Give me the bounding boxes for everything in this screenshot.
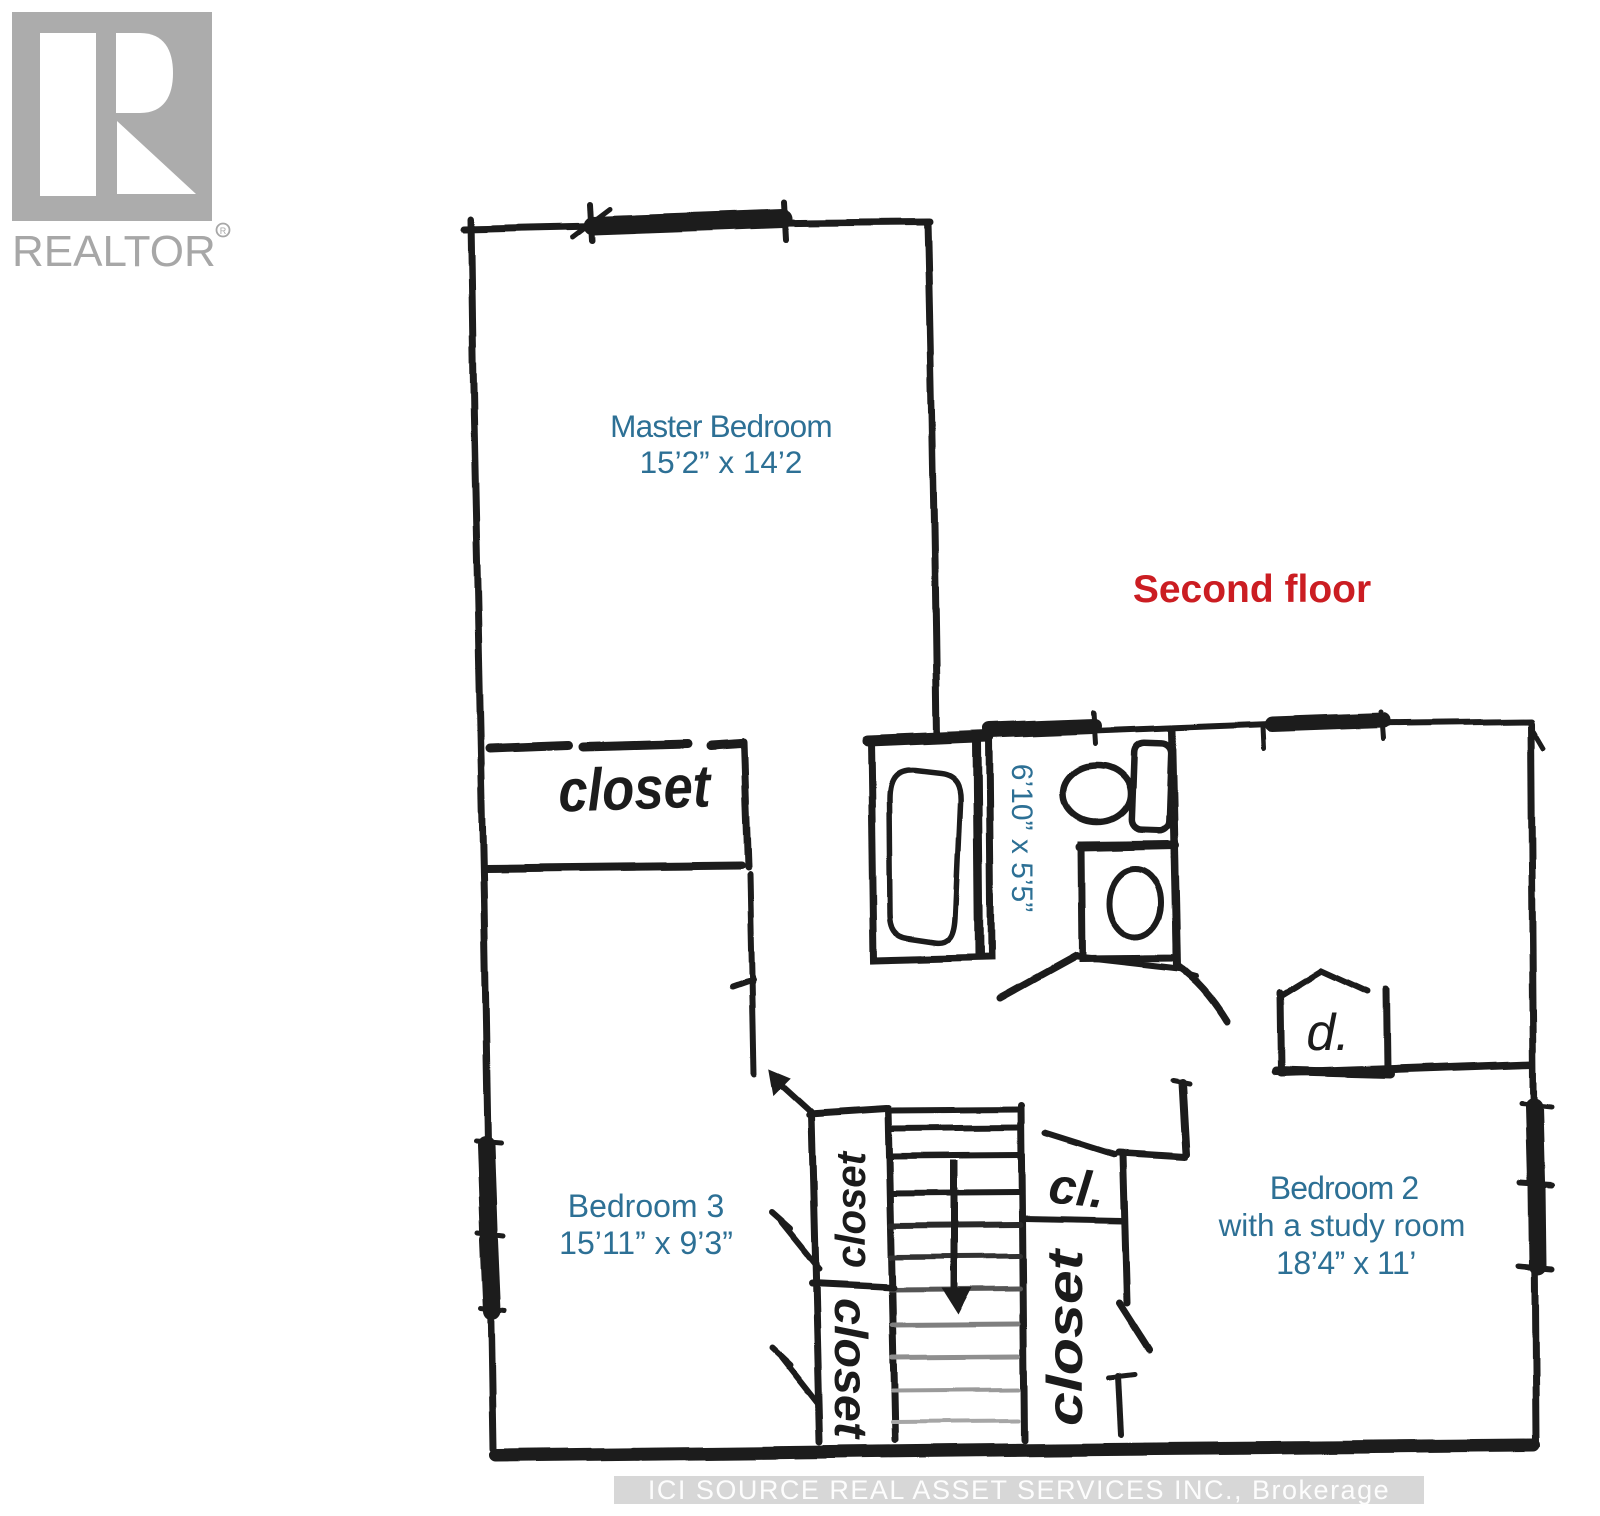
svg-text:d.: d.: [1306, 1004, 1349, 1062]
svg-text:Bedroom 2: Bedroom 2: [1270, 1170, 1419, 1206]
svg-text:15’2” x 14’2: 15’2” x 14’2: [640, 444, 803, 480]
svg-text:18’4” x 11’: 18’4” x 11’: [1276, 1245, 1416, 1281]
svg-text:6’10” x 5’5”: 6’10” x 5’5”: [1005, 764, 1038, 912]
svg-text:closet: closet: [557, 752, 714, 824]
svg-text:cl.: cl.: [1046, 1157, 1107, 1219]
svg-text:closet: closet: [1037, 1247, 1093, 1426]
svg-text:REALTOR: REALTOR: [12, 227, 216, 276]
svg-text:R: R: [220, 226, 227, 236]
svg-text:Second floor: Second floor: [1133, 568, 1371, 611]
svg-text:closet: closet: [825, 1298, 877, 1440]
svg-text:ICI SOURCE REAL ASSET SERVICES: ICI SOURCE REAL ASSET SERVICES INC., Bro…: [648, 1475, 1390, 1505]
svg-text:closet: closet: [827, 1150, 874, 1268]
svg-text:Bedroom 3: Bedroom 3: [568, 1188, 725, 1224]
svg-text:Master Bedroom: Master Bedroom: [610, 408, 832, 444]
svg-text:15’11” x 9’3”: 15’11” x 9’3”: [559, 1225, 733, 1261]
svg-text:with a study room: with a study room: [1218, 1207, 1466, 1243]
